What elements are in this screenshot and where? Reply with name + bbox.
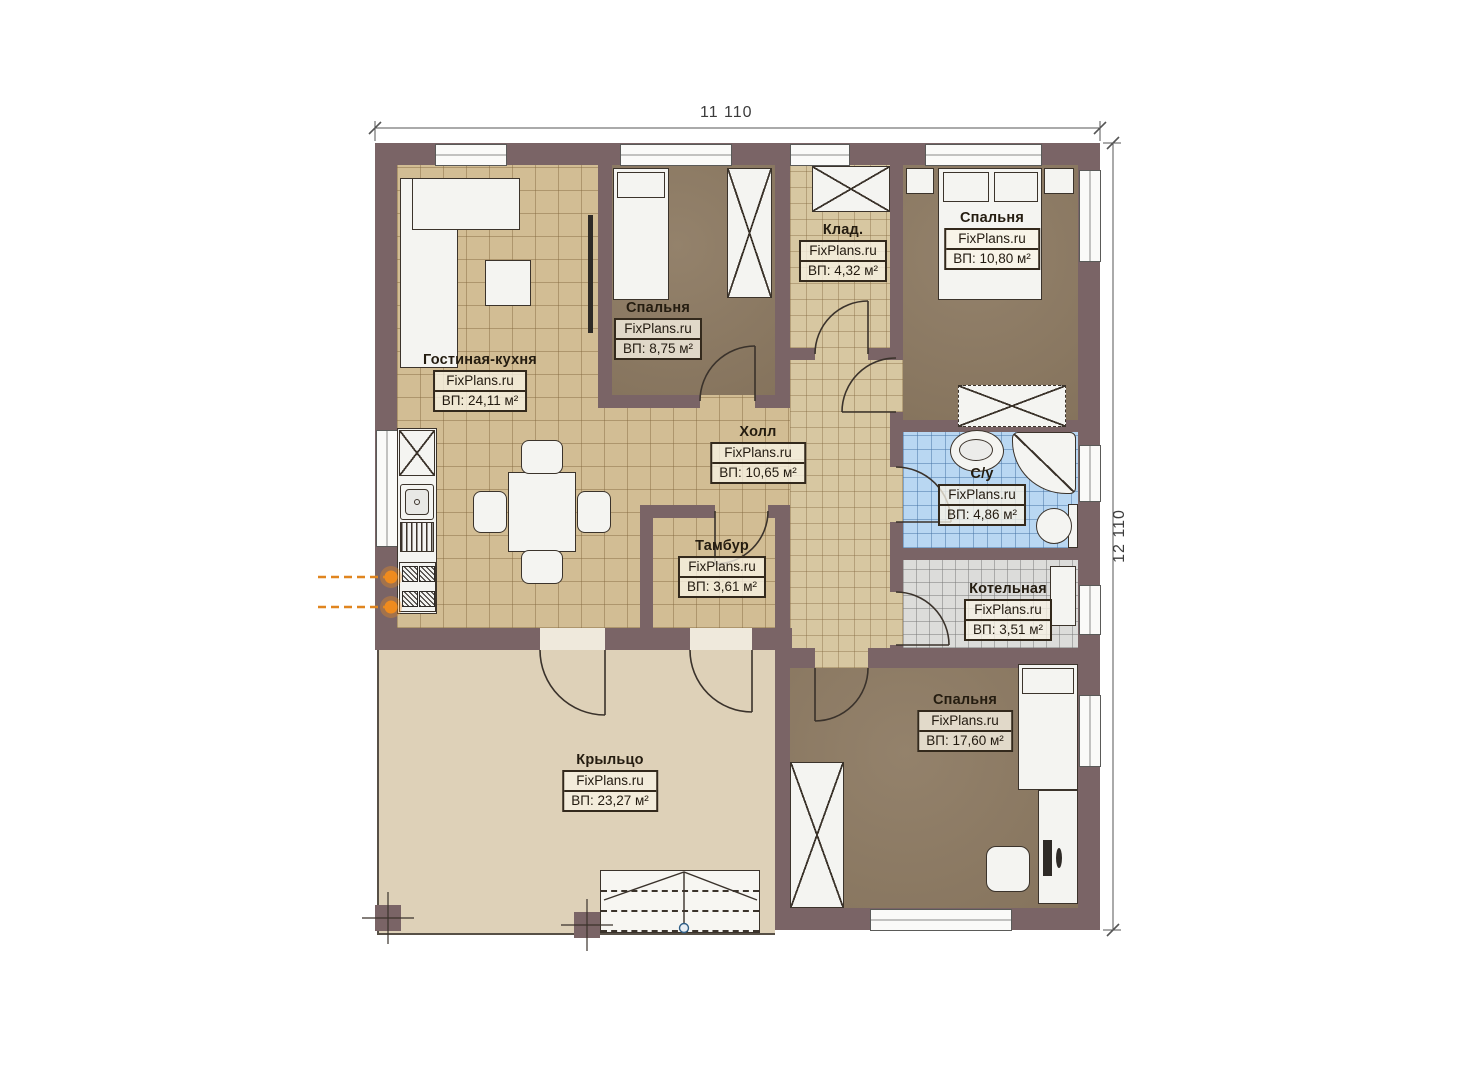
room-area: ВП: 17,60 м² xyxy=(919,732,1011,750)
room-info-box: FixPlans.ru ВП: 23,27 м² xyxy=(562,770,658,812)
room-name: Котельная xyxy=(964,581,1052,597)
room-name: Крыльцо xyxy=(562,752,658,768)
pillow xyxy=(943,172,989,202)
room-label-bedroom-3: Спальня FixPlans.ru ВП: 17,60 м² xyxy=(917,692,1013,752)
dining-chair xyxy=(521,440,563,474)
wall-exterior-left xyxy=(375,143,397,650)
watermark: FixPlans.ru xyxy=(940,486,1024,506)
wall-exterior-bottom-left xyxy=(375,628,540,650)
room-name: С/у xyxy=(938,466,1026,482)
window xyxy=(870,909,1012,931)
room-label-bedroom-1: Спальня FixPlans.ru ВП: 8,75 м² xyxy=(614,300,702,360)
room-label-hall: Холл FixPlans.ru ВП: 10,65 м² xyxy=(710,424,806,484)
watermark: FixPlans.ru xyxy=(712,444,804,464)
window xyxy=(1079,445,1101,502)
door-threshold xyxy=(540,628,605,650)
coffee-table xyxy=(485,260,531,306)
stairs xyxy=(600,870,760,933)
watermark: FixPlans.ru xyxy=(946,230,1038,250)
wall-bedroom1-bottom xyxy=(755,395,790,408)
stove xyxy=(399,562,436,612)
room-info-box: FixPlans.ru ВП: 8,75 м² xyxy=(614,318,702,360)
room-label-bathroom: С/у FixPlans.ru ВП: 4,86 м² xyxy=(938,466,1026,526)
room-area: ВП: 8,75 м² xyxy=(616,340,700,358)
room-area: ВП: 10,65 м² xyxy=(712,464,804,482)
watermark: FixPlans.ru xyxy=(680,558,764,578)
dimension-height: 12 110 xyxy=(1111,509,1129,563)
watermark: FixPlans.ru xyxy=(564,772,656,792)
nightstand xyxy=(906,168,934,194)
wall-bedroom1-left xyxy=(598,165,612,408)
window xyxy=(435,144,507,166)
fridge xyxy=(399,430,435,476)
room-info-box: FixPlans.ru ВП: 10,65 м² xyxy=(710,442,806,484)
office-chair xyxy=(986,846,1030,892)
burner xyxy=(419,566,435,582)
window xyxy=(925,144,1042,166)
wardrobe xyxy=(812,166,890,212)
room-info-box: FixPlans.ru ВП: 10,80 м² xyxy=(944,228,1040,270)
pillow xyxy=(617,172,665,198)
room-area: ВП: 23,27 м² xyxy=(564,792,656,810)
stair-tread xyxy=(601,871,759,892)
sink-drain xyxy=(414,499,420,505)
watermark: FixPlans.ru xyxy=(966,601,1050,621)
room-name: Холл xyxy=(710,424,806,440)
pillow xyxy=(994,172,1038,202)
watermark: FixPlans.ru xyxy=(435,372,526,392)
wall-hall-east xyxy=(890,143,903,358)
porch-column xyxy=(375,905,401,931)
room-name: Спальня xyxy=(614,300,702,316)
room-label-tambour: Тамбур FixPlans.ru ВП: 3,61 м² xyxy=(678,538,766,598)
wall-bathroom-bottom xyxy=(890,548,1078,560)
room-area: ВП: 4,86 м² xyxy=(940,506,1024,524)
room-info-box: FixPlans.ru ВП: 4,86 м² xyxy=(938,484,1026,526)
room-label-bedroom-2: Спальня FixPlans.ru ВП: 10,80 м² xyxy=(944,210,1040,270)
toilet-bowl xyxy=(1036,508,1072,544)
dimension-width: 11 110 xyxy=(700,104,753,122)
computer-monitor xyxy=(1043,840,1052,876)
boiler xyxy=(1050,566,1076,626)
watermark: FixPlans.ru xyxy=(616,320,700,340)
window xyxy=(1079,695,1101,767)
dining-chair xyxy=(473,491,507,533)
window xyxy=(620,144,732,166)
porch-column xyxy=(574,912,600,938)
wall-spine-lower xyxy=(775,505,790,650)
window xyxy=(790,144,850,166)
room-label-living-kitchen: Гостиная-кухня FixPlans.ru ВП: 24,11 м² xyxy=(423,352,537,412)
room-name: Клад. xyxy=(799,222,887,238)
pillow xyxy=(1022,668,1074,694)
room-label-boiler-room: Котельная FixPlans.ru ВП: 3,51 м² xyxy=(964,581,1052,641)
room-area: ВП: 3,61 м² xyxy=(680,578,764,596)
wall-spine-upper xyxy=(775,143,790,408)
wall-wing-left xyxy=(775,650,790,930)
wall-bedroom1-bottom xyxy=(598,395,700,408)
wardrobe xyxy=(958,385,1066,427)
dining-table xyxy=(508,472,576,552)
dining-chair xyxy=(521,550,563,584)
sofa xyxy=(412,178,520,230)
wall-tambour-left xyxy=(640,505,653,650)
stair-tread xyxy=(601,911,759,932)
wall-hall-east xyxy=(890,412,903,467)
room-label-porch: Крыльцо FixPlans.ru ВП: 23,27 м² xyxy=(562,752,658,812)
room-info-box: FixPlans.ru ВП: 3,51 м² xyxy=(964,599,1052,641)
wall-tambour-top xyxy=(768,505,790,518)
wardrobe xyxy=(790,762,844,908)
burner xyxy=(419,591,435,607)
room-info-box: FixPlans.ru ВП: 4,32 м² xyxy=(799,240,887,282)
wall-bedroom3-top xyxy=(790,648,815,668)
window xyxy=(376,430,398,547)
room-name: Спальня xyxy=(917,692,1013,708)
floor-plan-page: { "plan": { "title": "Floor plan", "dime… xyxy=(0,0,1473,1080)
dining-chair xyxy=(577,491,611,533)
dishwasher xyxy=(400,522,434,552)
burner xyxy=(402,591,418,607)
burner xyxy=(402,566,418,582)
wall-storage-bottom xyxy=(790,348,815,360)
room-info-box: FixPlans.ru ВП: 3,61 м² xyxy=(678,556,766,598)
room-name: Спальня xyxy=(944,210,1040,226)
wardrobe xyxy=(727,168,772,298)
room-info-box: FixPlans.ru ВП: 17,60 м² xyxy=(917,710,1013,752)
room-label-storage: Клад. FixPlans.ru ВП: 4,32 м² xyxy=(799,222,887,282)
room-name: Гостиная-кухня xyxy=(423,352,537,368)
stair-tread xyxy=(601,891,759,912)
room-area: ВП: 3,51 м² xyxy=(966,621,1050,639)
basin-bowl xyxy=(959,439,993,461)
window xyxy=(1079,170,1101,262)
nightstand xyxy=(1044,168,1074,194)
watermark: FixPlans.ru xyxy=(801,242,885,262)
door-threshold xyxy=(690,628,752,650)
room-area: ВП: 10,80 м² xyxy=(946,250,1038,268)
room-area: ВП: 4,32 м² xyxy=(801,262,885,280)
window xyxy=(1079,585,1101,635)
watermark: FixPlans.ru xyxy=(919,712,1011,732)
computer-speaker xyxy=(1056,848,1062,868)
kitchen-sink xyxy=(400,484,434,520)
room-area: ВП: 24,11 м² xyxy=(435,392,526,410)
room-name: Тамбур xyxy=(678,538,766,554)
room-info-box: FixPlans.ru ВП: 24,11 м² xyxy=(433,370,528,412)
tv xyxy=(588,215,593,333)
